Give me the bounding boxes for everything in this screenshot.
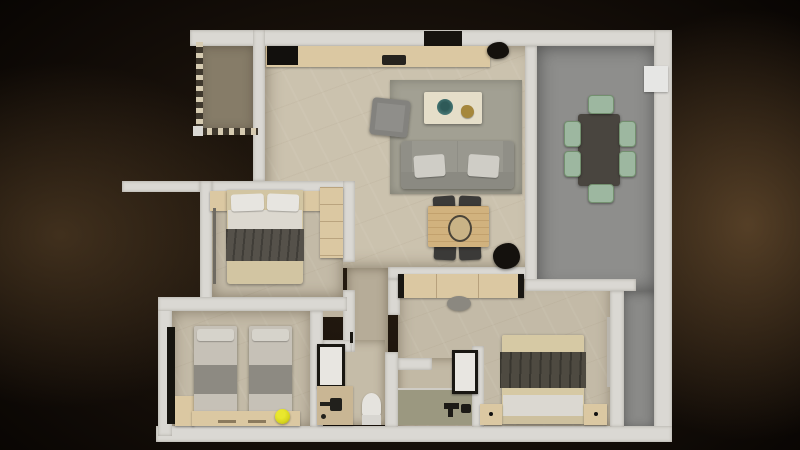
bedroom3-bed-platform	[502, 416, 584, 424]
bedroom1-curtain-rail	[213, 208, 216, 284]
wall-bedroom1-right-upper	[343, 181, 355, 262]
sofa-pillow-right	[467, 154, 499, 178]
bedroom3-nightstand-left-knob	[489, 412, 493, 416]
bathroom1-shower	[317, 344, 345, 388]
dining-chair-bottom	[588, 184, 614, 203]
wall-grayroom-bottom	[525, 279, 636, 291]
bedroom2-bed-left-pillow	[197, 329, 234, 341]
dining-chair-left-2	[564, 151, 581, 177]
bathroom1-toilet-bowl	[362, 393, 381, 417]
wall-bedroom2-top	[158, 297, 347, 311]
wall-bathrooms-mid	[385, 352, 398, 427]
bedroom3-nightstand-right-knob	[594, 412, 598, 416]
bedroom3-curtain-rail	[607, 317, 610, 387]
bedroom1-wardrobe	[320, 187, 343, 258]
wall-bottom	[156, 426, 672, 442]
wall-bedroom3-right	[610, 291, 624, 427]
bedroom1-pillow-left	[231, 193, 265, 211]
floor-plan-scene	[0, 0, 800, 450]
wall-grayroom-left	[525, 46, 537, 291]
terrace-dashed-left	[196, 42, 203, 134]
yellow-ball	[275, 409, 290, 424]
terrace-floor	[196, 42, 258, 134]
dining-chair-left-1	[564, 121, 581, 147]
dining-chair-right-2	[619, 151, 636, 177]
bedroom2-bed-right-pillow	[252, 329, 289, 341]
bathroom1-sink	[330, 398, 342, 411]
bathroom1-drain-dot	[321, 414, 326, 419]
bathroom2-fixture-head	[461, 404, 471, 413]
terrace-corner-cap	[193, 126, 203, 136]
armchair	[369, 97, 411, 138]
bathroom2-shower	[452, 350, 478, 394]
desk-centerpiece	[448, 215, 472, 242]
bathroom1-door-mark	[350, 332, 353, 343]
bedroom1-throw-blanket	[226, 229, 304, 261]
entry-opening	[424, 31, 462, 46]
sideboard	[398, 274, 524, 298]
bedroom3-bed-pillow-zone	[503, 395, 583, 416]
bedroom1-pillow-right	[267, 193, 300, 211]
ac-unit	[644, 66, 668, 92]
kitchen-counter	[266, 46, 490, 67]
kitchen-plant	[487, 42, 509, 59]
living-plant	[493, 243, 520, 269]
bedroom1-nightstand-right	[303, 191, 321, 211]
bedroom3-throw-blanket	[500, 352, 586, 388]
bedroom2-tall-cabinet	[167, 327, 175, 424]
teal-bowl-decor	[437, 99, 453, 115]
bathroom2-fixture-handle	[448, 409, 453, 417]
bathroom1-faucet	[320, 402, 331, 406]
bedroom2-bed-right-blanket	[249, 365, 292, 394]
bathroom1-toilet-tank	[362, 415, 381, 425]
kitchen-cooktop	[267, 46, 298, 65]
dining-chair-top	[588, 95, 614, 114]
bedroom1-bed-sheet	[228, 210, 302, 229]
wall-bedroom1-top-stub	[122, 181, 200, 192]
sofa-pillow-left	[413, 154, 445, 178]
dining-chair-right-1	[619, 121, 636, 147]
bedroom2-bed-left-blanket	[194, 365, 237, 394]
gray-terrace-strip-floor	[622, 291, 656, 430]
wall-bathroom2-top	[398, 358, 432, 370]
dining-table	[578, 114, 620, 186]
kitchen-sink	[382, 55, 406, 65]
terrace-dashed-bottom	[196, 128, 258, 135]
gold-decor	[461, 105, 474, 118]
wall-terrace-right	[253, 30, 265, 181]
pouf	[447, 296, 471, 311]
